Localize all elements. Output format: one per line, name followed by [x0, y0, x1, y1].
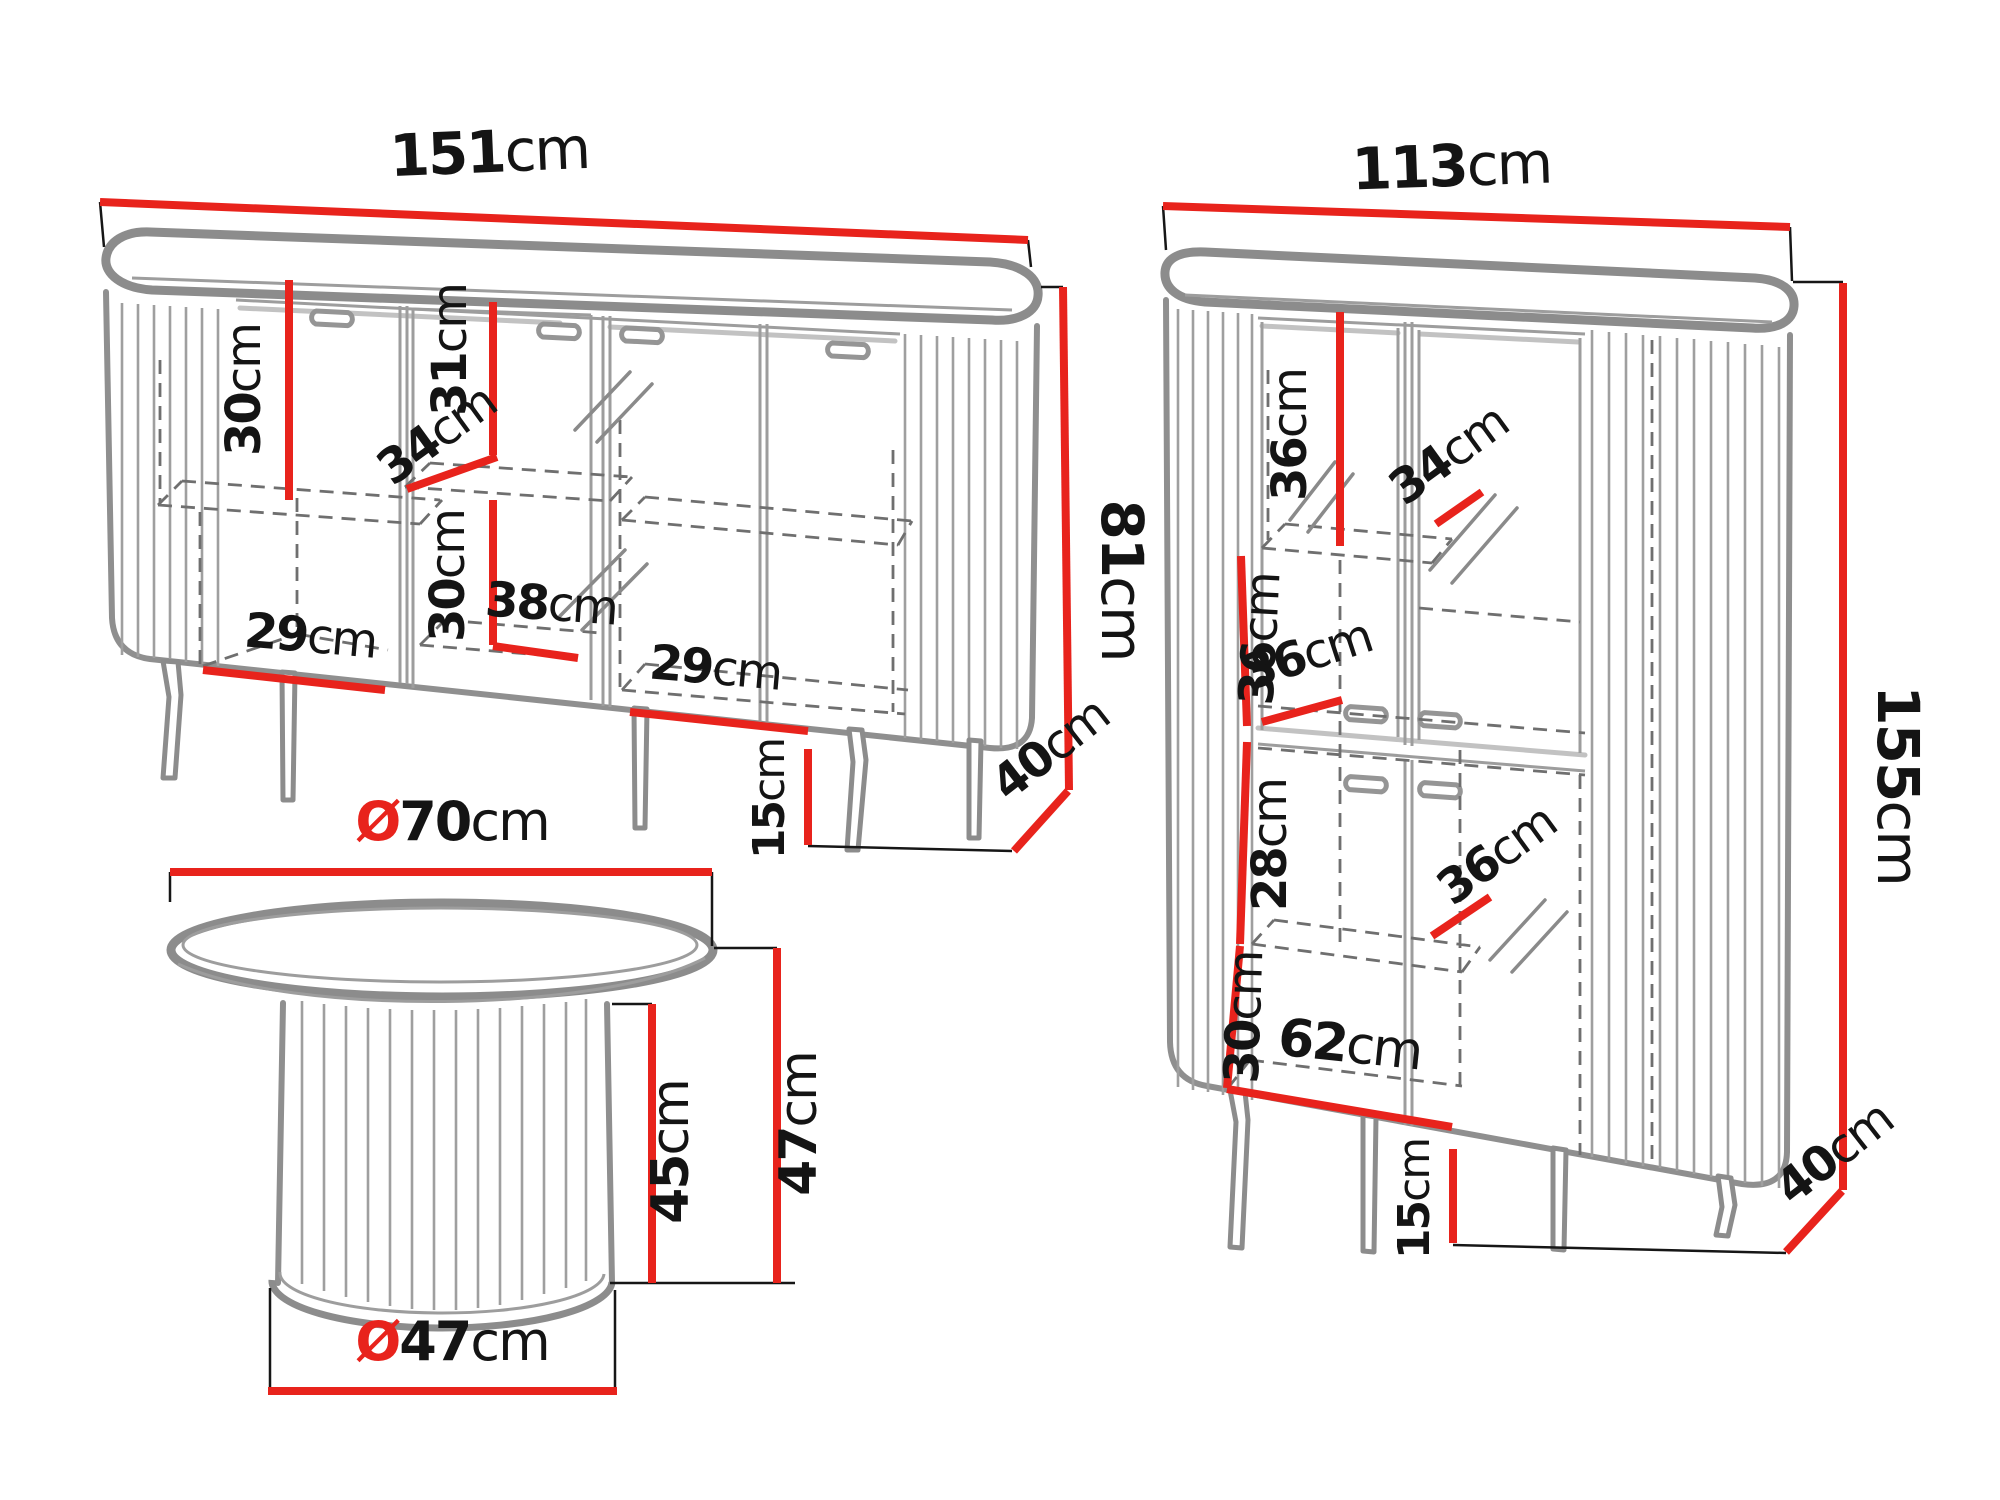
- dim-label-height: 81cm: [1088, 499, 1156, 660]
- highboard-fluting-right: [1592, 330, 1779, 1188]
- dim-label-pedestal-height: 45cm: [641, 1080, 701, 1224]
- sideboard-leg: [847, 729, 866, 850]
- highboard-leg: [1716, 1176, 1735, 1236]
- dim-label-total-height: 47cm: [769, 1052, 829, 1196]
- dim-line-width: [1163, 206, 1790, 227]
- sideboard-fluting-right: [905, 334, 1017, 749]
- dim-label-height: 155cm: [1864, 685, 1932, 884]
- dim-label-leg-height: 15cm: [744, 739, 795, 859]
- dim-line-bottom-inner-width: [1227, 1089, 1452, 1127]
- dim-label-mid-lower-height: 30cm: [420, 510, 476, 642]
- sideboard-leg: [634, 708, 647, 828]
- sideboard-leg: [969, 740, 981, 838]
- door-handle-icon: [538, 324, 579, 339]
- table-pedestal-sides: [278, 1003, 612, 1283]
- sideboard-leg: [163, 661, 181, 778]
- furniture-dimension-diagram: 151cm 81cm 30cm 31cm 34cm 30cm 38cm 29cm…: [0, 0, 2000, 1500]
- highboard-leg: [1363, 1115, 1376, 1252]
- door-handle-icon: [1419, 782, 1461, 798]
- sideboard: 151cm 81cm 30cm 31cm 34cm 30cm 38cm 29cm…: [100, 114, 1156, 859]
- sideboard-leg: [282, 672, 295, 800]
- highboard: 113cm 155cm 36cm 34cm 36cm 36cm 28cm 36c…: [1163, 129, 1932, 1260]
- dim-label-right-inner-width: 29cm: [647, 634, 783, 701]
- highboard-lower-door-top: [1258, 744, 1585, 771]
- dim-line-mid-lower-width: [493, 646, 578, 658]
- door-handle-icon: [1345, 776, 1387, 792]
- diagram-canvas: 151cm 81cm 30cm 31cm 34cm 30cm 38cm 29cm…: [0, 0, 2000, 1500]
- table-pedestal-fluting: [302, 999, 586, 1310]
- door-handle-icon: [827, 343, 868, 358]
- dim-label-left-inner-width: 29cm: [242, 602, 378, 669]
- dim-label-base-diameter: Ø47cm: [355, 1310, 548, 1373]
- dim-label-lower-shelf-depth: 36cm: [1427, 794, 1567, 917]
- dim-label-mid-lower-width: 38cm: [483, 572, 619, 637]
- dim-label-leg-height: 15cm: [1389, 1139, 1440, 1259]
- door-handle-icon: [621, 328, 662, 343]
- dim-label-top-shelf-depth: 34cm: [1379, 394, 1519, 517]
- table-base-ring-top: [280, 1272, 604, 1313]
- dim-label-bottom-inner-width: 62cm: [1275, 1008, 1424, 1083]
- dim-label-width: 151cm: [388, 114, 590, 190]
- highboard-leg: [1230, 1090, 1248, 1248]
- dim-label-top-diameter: Ø70cm: [355, 790, 548, 853]
- dim-label-width: 113cm: [1350, 129, 1552, 204]
- sideboard-fluting-left: [122, 303, 218, 666]
- dim-label-lower-inner-height: 28cm: [1242, 779, 1298, 911]
- door-handle-icon: [311, 311, 352, 326]
- dim-label-left-inner-height: 30cm: [216, 324, 272, 456]
- coffee-table: Ø70cm 45cm 47cm Ø47cm: [170, 790, 829, 1391]
- dim-label-bottom-inner-height: 30cm: [1214, 951, 1275, 1085]
- highboard-leg: [1553, 1148, 1566, 1250]
- dim-label-top-inner-height: 36cm: [1262, 369, 1318, 501]
- dim-line-right-inner-width: [630, 712, 808, 731]
